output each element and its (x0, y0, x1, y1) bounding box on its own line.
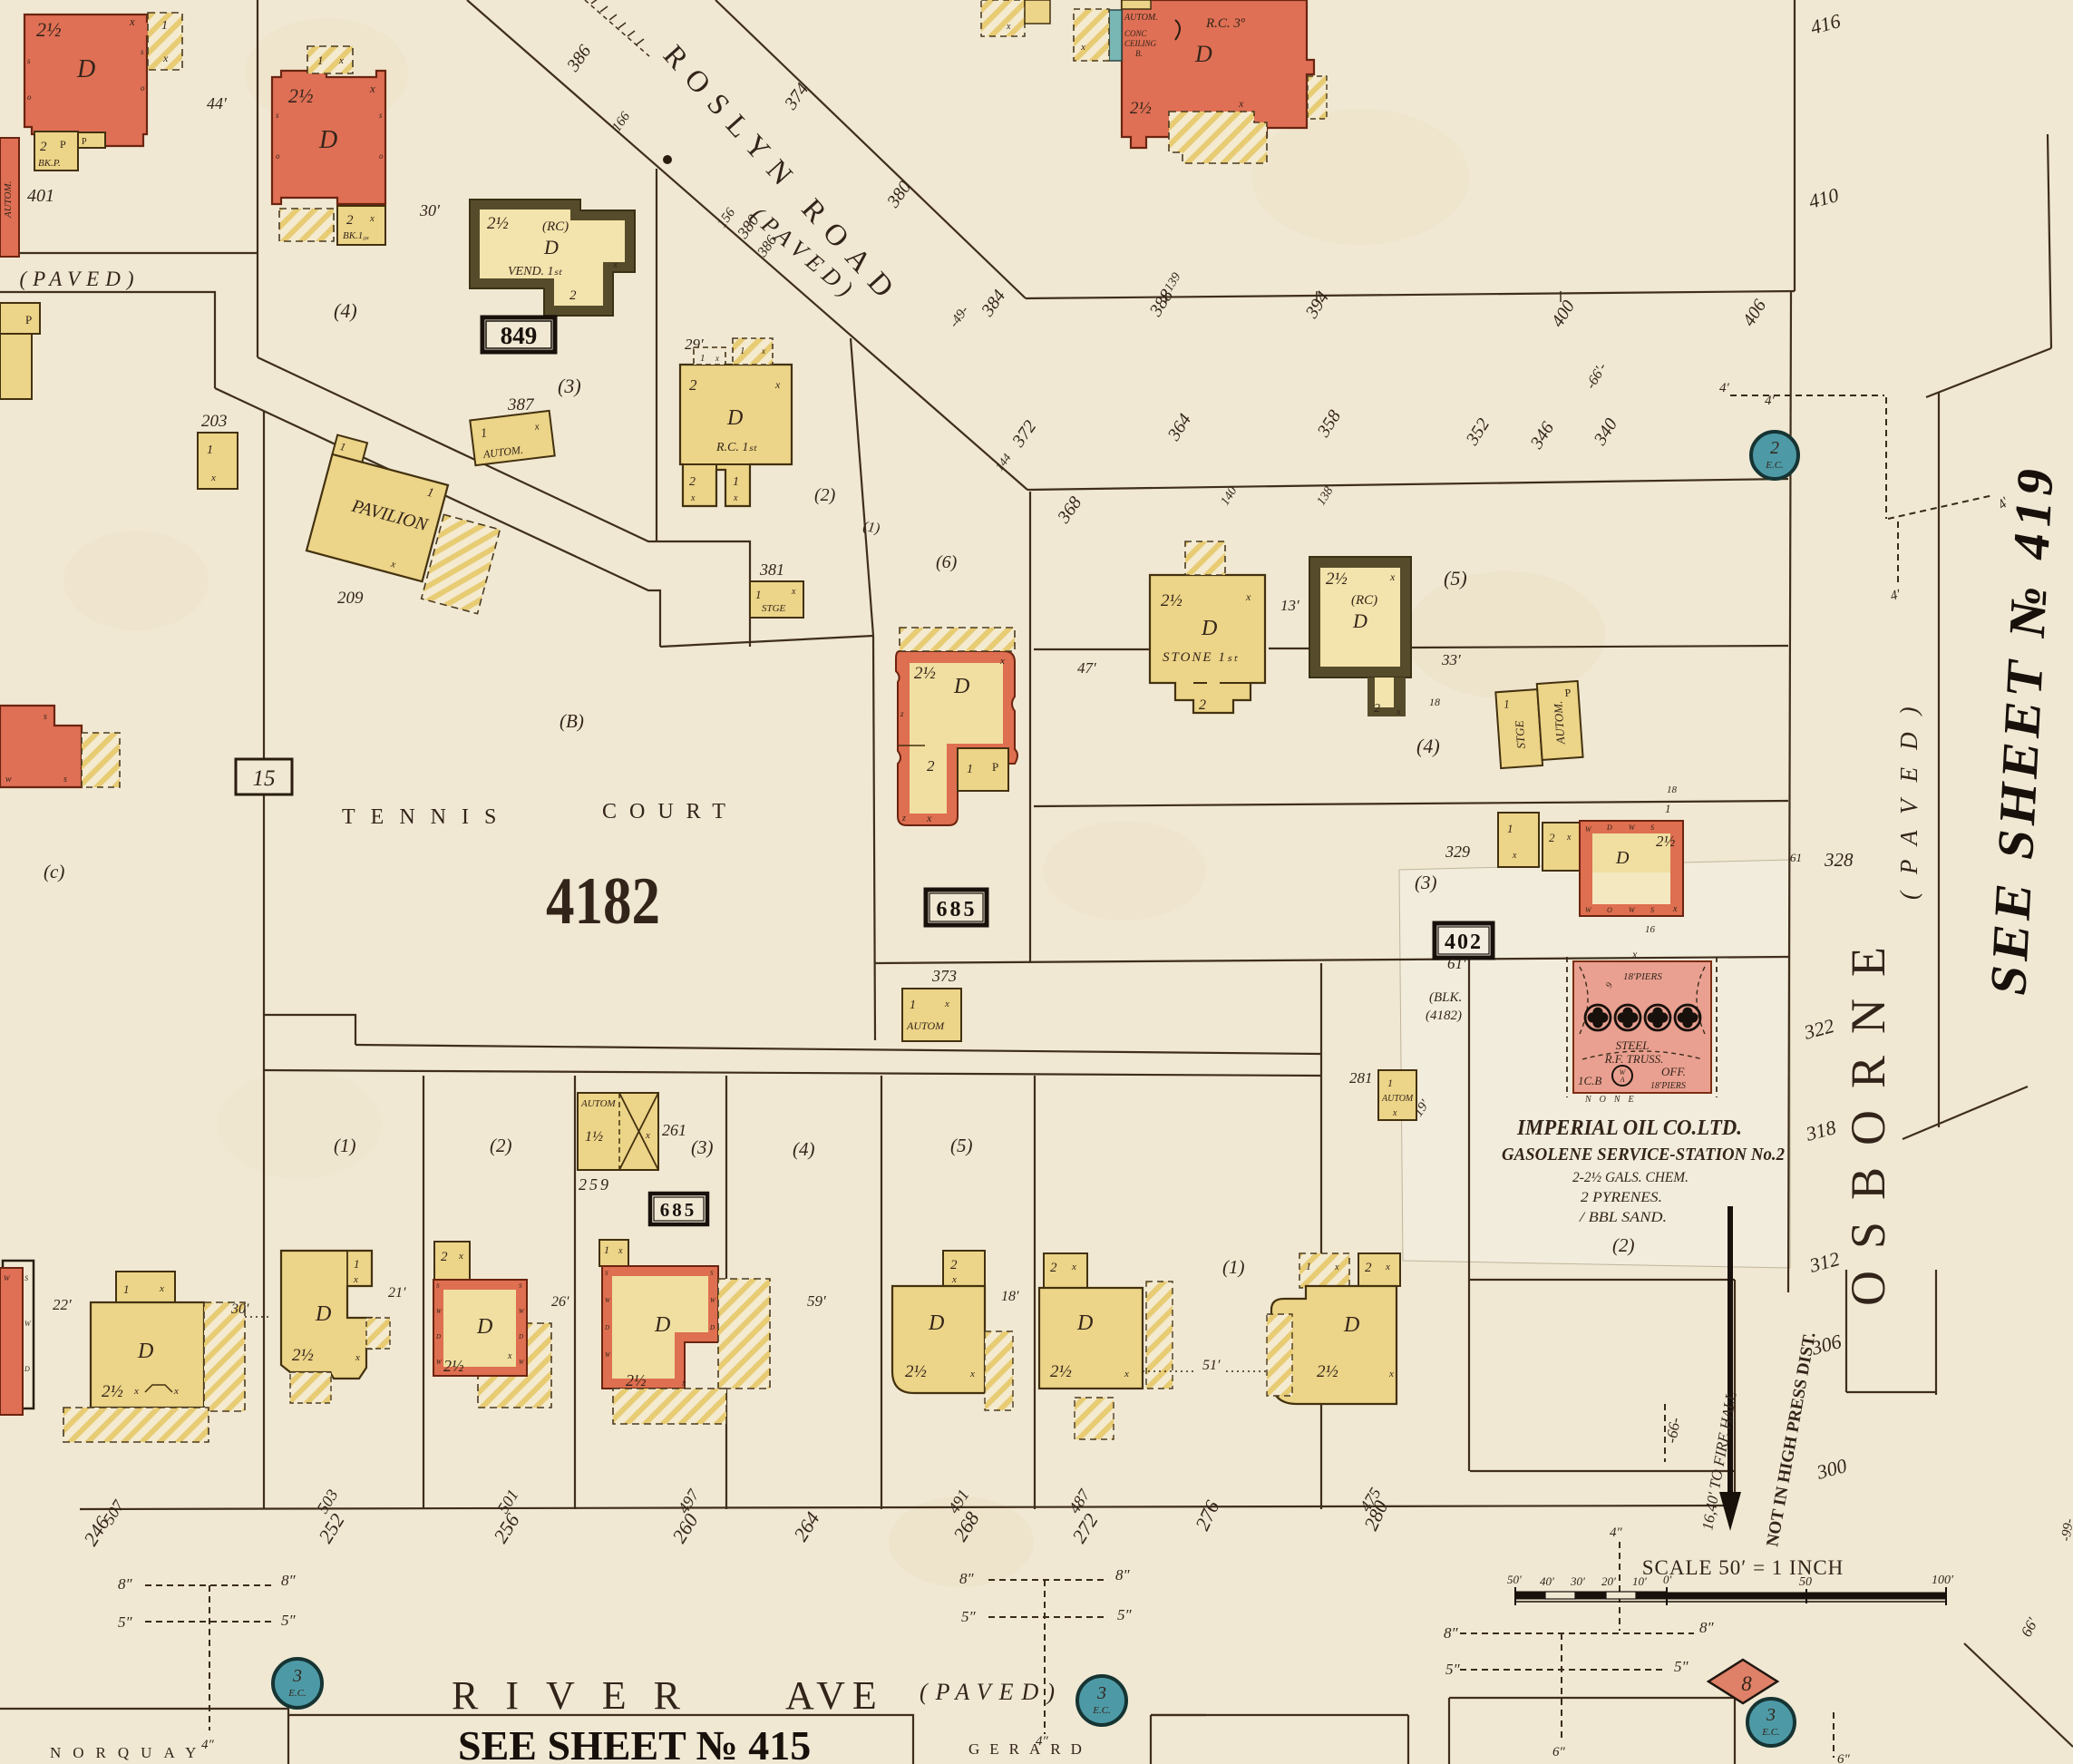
svg-text:s: s (44, 712, 47, 722)
svg-text:2: 2 (346, 213, 354, 228)
svg-text:1: 1 (910, 999, 916, 1012)
svg-text:2½: 2½ (36, 18, 62, 41)
svg-text:329: 329 (1445, 843, 1470, 861)
svg-text:18: 18 (1429, 696, 1440, 708)
svg-text:328: 328 (1824, 849, 1854, 871)
svg-text:(PAVED): (PAVED) (1895, 689, 1922, 900)
svg-text:AUTOM.: AUTOM. (1124, 13, 1158, 23)
svg-text:5″: 5″ (961, 1608, 977, 1625)
svg-text:x: x (1566, 833, 1572, 843)
svg-text:1: 1 (733, 475, 739, 489)
svg-text:30′: 30′ (1570, 1574, 1585, 1588)
svg-text:D: D (1606, 824, 1612, 832)
svg-text:259: 259 (579, 1175, 611, 1194)
svg-text:100′: 100′ (1932, 1574, 1954, 1587)
svg-text:26′: 26′ (551, 1294, 569, 1310)
svg-text:D: D (1615, 848, 1630, 868)
svg-text:2½: 2½ (102, 1382, 123, 1401)
svg-text:1: 1 (740, 346, 745, 356)
svg-text:D: D (1076, 1311, 1093, 1335)
svg-text:2½: 2½ (292, 1346, 314, 1365)
svg-text:(1): (1) (1222, 1256, 1245, 1278)
svg-text:2: 2 (689, 475, 696, 489)
svg-text:1: 1 (123, 1282, 130, 1296)
svg-text:0′: 0′ (1663, 1573, 1672, 1586)
svg-text:x: x (162, 52, 169, 64)
svg-text:x: x (944, 999, 949, 1009)
svg-text:S: S (1650, 824, 1654, 832)
svg-text:x: x (173, 1386, 179, 1397)
svg-text:S: S (436, 1282, 440, 1290)
svg-text:S: S (519, 1282, 522, 1290)
svg-text:S: S (710, 1270, 714, 1277)
svg-text:x: x (761, 346, 765, 356)
svg-text:P: P (1564, 687, 1572, 699)
svg-text:x: x (1512, 851, 1517, 861)
svg-text:STGE: STGE (762, 603, 786, 614)
svg-text:/ BBL SAND.: / BBL SAND. (1579, 1210, 1667, 1225)
svg-text:(1): (1) (861, 519, 881, 536)
svg-text:2½: 2½ (1317, 1362, 1338, 1381)
svg-text:D: D (318, 126, 337, 154)
svg-text:x: x (791, 587, 796, 597)
svg-text:2: 2 (689, 376, 697, 394)
svg-text:STGE: STGE (1513, 720, 1528, 749)
svg-text:x: x (1388, 1369, 1394, 1379)
svg-text:1: 1 (1504, 697, 1511, 710)
svg-text:(B): (B) (560, 710, 584, 732)
svg-text:s: s (63, 775, 67, 785)
svg-text:x: x (129, 15, 135, 28)
svg-text:2: 2 (1374, 702, 1380, 716)
svg-text:4′: 4′ (1765, 394, 1776, 408)
svg-text:D: D (315, 1302, 331, 1326)
svg-text:OFF.: OFF. (1661, 1065, 1686, 1078)
svg-text:2½: 2½ (1161, 591, 1182, 610)
svg-text:(5): (5) (1444, 567, 1467, 590)
svg-text:2½: 2½ (1130, 99, 1152, 118)
svg-text:D: D (24, 1365, 30, 1373)
svg-text:50′: 50′ (1507, 1573, 1522, 1586)
svg-text:x: x (774, 378, 781, 391)
svg-text:2½: 2½ (288, 84, 314, 107)
svg-text:8″: 8″ (1699, 1619, 1715, 1636)
svg-text:D: D (604, 1324, 609, 1331)
svg-text:2: 2 (40, 140, 47, 154)
svg-text:VEND. 1ₛₜ: VEND. 1ₛₜ (508, 265, 563, 278)
svg-text:x: x (369, 82, 375, 95)
svg-text:AVE: AVE (785, 1673, 884, 1718)
svg-text:22′: 22′ (53, 1296, 72, 1313)
svg-text:RIVER: RIVER (452, 1673, 707, 1718)
svg-text:o: o (379, 151, 384, 161)
svg-text:1: 1 (1665, 802, 1671, 815)
svg-text:R.F. TRUSS.: R.F. TRUSS. (1604, 1052, 1664, 1066)
svg-text:2½: 2½ (626, 1371, 647, 1389)
svg-text:5″: 5″ (1674, 1658, 1689, 1675)
svg-text:x: x (1392, 1108, 1397, 1118)
svg-text:x: x (715, 354, 719, 363)
svg-text:4182: 4182 (546, 864, 660, 939)
svg-text:849: 849 (501, 322, 538, 349)
svg-text:4″: 4″ (1610, 1525, 1623, 1540)
svg-text:D: D (726, 406, 743, 430)
svg-text:O: O (1607, 906, 1612, 914)
svg-text:A: A (1620, 1076, 1625, 1084)
svg-text:CEILING: CEILING (1124, 39, 1157, 48)
svg-text:x: x (210, 473, 216, 483)
svg-text:1: 1 (354, 1257, 360, 1271)
svg-text:1: 1 (161, 19, 168, 33)
svg-text:NORQUAY: NORQUAY (50, 1744, 208, 1761)
svg-text:x: x (926, 812, 932, 824)
svg-text:E.C.: E.C. (287, 1688, 307, 1699)
svg-text:D: D (709, 1324, 715, 1331)
svg-text:1: 1 (967, 763, 973, 776)
svg-text:x: x (1631, 948, 1638, 960)
svg-text:30′: 30′ (230, 1301, 249, 1317)
svg-text:z: z (901, 814, 906, 824)
svg-text:D: D (654, 1313, 670, 1337)
svg-text:2½: 2½ (487, 214, 509, 233)
svg-text:5″: 5″ (1117, 1606, 1133, 1623)
svg-text:R.C. 1ₛₜ: R.C. 1ₛₜ (715, 441, 758, 454)
svg-text:AUTOM.: AUTOM. (3, 181, 14, 219)
svg-text:E.C.: E.C. (1765, 460, 1784, 471)
svg-text:BK.P.: BK.P. (38, 158, 61, 169)
svg-text:5″: 5″ (281, 1612, 297, 1629)
svg-text:GERARD: GERARD (968, 1740, 1092, 1758)
svg-text:18: 18 (1667, 785, 1678, 795)
svg-text:P: P (60, 138, 66, 151)
svg-text:5″: 5″ (1445, 1661, 1461, 1678)
svg-text:40′: 40′ (1540, 1574, 1554, 1588)
svg-text:2: 2 (1365, 1261, 1372, 1275)
svg-text:GASOLENE SERVICE-STATION No.2: GASOLENE SERVICE-STATION No.2 (1502, 1145, 1785, 1165)
svg-text:2 PYRENES.: 2 PYRENES. (1581, 1190, 1662, 1205)
svg-text:STONE 1ₛₜ: STONE 1ₛₜ (1163, 650, 1240, 665)
svg-text:203: 203 (201, 412, 228, 431)
svg-text:E.C.: E.C. (1092, 1705, 1111, 1716)
svg-text:OSBORNE: OSBORNE (1841, 925, 1895, 1306)
svg-text:x: x (969, 1369, 975, 1379)
svg-text:(3): (3) (558, 375, 581, 397)
svg-text:SEE SHEET № 415: SEE SHEET № 415 (458, 1722, 811, 1764)
svg-text:(4): (4) (793, 1138, 815, 1160)
svg-text:30′: 30′ (419, 201, 441, 219)
svg-text:x: x (1389, 570, 1396, 583)
svg-text:20′: 20′ (1601, 1574, 1616, 1588)
svg-text:685: 685 (660, 1199, 697, 1221)
svg-text:w: w (5, 775, 12, 785)
svg-text:x: x (353, 1274, 358, 1285)
svg-text:x: x (1245, 590, 1251, 603)
svg-text:x: x (458, 1251, 463, 1262)
svg-text:(3): (3) (691, 1136, 714, 1158)
svg-text:NONE: NONE (1584, 1095, 1642, 1105)
svg-text:6″: 6″ (1552, 1745, 1566, 1759)
svg-text:D: D (137, 1340, 153, 1363)
svg-text:1: 1 (1507, 822, 1513, 835)
svg-text:D: D (1352, 609, 1367, 632)
svg-text:2: 2 (1199, 697, 1206, 713)
svg-text:o: o (27, 93, 32, 102)
svg-text:x: x (159, 1283, 164, 1294)
svg-text:x: x (1080, 42, 1085, 53)
svg-text:1: 1 (207, 443, 213, 457)
svg-text:STEEL: STEEL (1616, 1038, 1650, 1052)
svg-text:1: 1 (604, 1243, 609, 1256)
svg-text:2½: 2½ (905, 1362, 927, 1381)
svg-text:1: 1 (1387, 1077, 1393, 1089)
svg-text:x: x (507, 1351, 512, 1361)
svg-text:2: 2 (1770, 438, 1779, 458)
svg-text:D: D (476, 1315, 492, 1339)
svg-text:50: 50 (1799, 1575, 1812, 1589)
svg-text:4″: 4″ (1036, 1734, 1049, 1749)
svg-text:x: x (369, 213, 375, 224)
svg-text:D: D (1343, 1313, 1359, 1337)
svg-text:BK.1₀ₓ: BK.1₀ₓ (343, 230, 369, 241)
svg-text:59′: 59′ (807, 1292, 826, 1310)
svg-text:10′: 10′ (1632, 1574, 1647, 1588)
svg-text:CONC: CONC (1124, 29, 1148, 38)
svg-text:IMPERIAL OIL CO.LTD.: IMPERIAL OIL CO.LTD. (1516, 1116, 1742, 1140)
svg-text:S: S (24, 1274, 28, 1282)
svg-text:(2): (2) (1612, 1234, 1635, 1256)
svg-text:209: 209 (337, 589, 364, 608)
svg-text:S: S (605, 1270, 608, 1277)
svg-text:S: S (1650, 906, 1654, 914)
svg-text:D: D (543, 236, 559, 258)
svg-text:8″: 8″ (118, 1575, 133, 1593)
svg-text:(6): (6) (936, 552, 958, 572)
svg-text:(RC): (RC) (542, 219, 569, 234)
svg-text:1: 1 (700, 353, 706, 364)
svg-text:(RC): (RC) (1351, 593, 1377, 608)
svg-text:D: D (928, 1311, 944, 1335)
svg-text:13′: 13′ (1280, 597, 1299, 614)
svg-text:61′: 61′ (1447, 955, 1466, 972)
svg-text:D: D (76, 55, 95, 83)
svg-text:15: 15 (253, 766, 276, 791)
svg-text:2½: 2½ (1326, 570, 1348, 589)
svg-text:s: s (27, 56, 31, 65)
svg-text:x: x (690, 493, 696, 503)
svg-text:(c): (c) (44, 861, 64, 882)
svg-text:SCALE 50′ = 1 INCH: SCALE 50′ = 1 INCH (1642, 1556, 1844, 1579)
svg-text:33′: 33′ (1441, 651, 1461, 668)
svg-text:261: 261 (662, 1121, 686, 1139)
svg-text:AUTOM: AUTOM (1381, 1094, 1414, 1104)
svg-text:3: 3 (1766, 1705, 1776, 1725)
svg-text:8: 8 (1741, 1672, 1752, 1695)
svg-text:8″: 8″ (959, 1570, 975, 1587)
svg-text:P: P (82, 137, 87, 147)
svg-text:(2): (2) (490, 1135, 512, 1156)
svg-text:401: 401 (27, 186, 54, 206)
svg-text:z: z (900, 709, 904, 718)
svg-text:1C.B: 1C.B (1578, 1074, 1601, 1087)
svg-text:TENNIS: TENNIS (342, 805, 511, 829)
svg-text:(2): (2) (814, 485, 836, 505)
svg-text:x: x (338, 55, 344, 66)
svg-text:x: x (951, 1274, 957, 1285)
svg-text:x: x (1385, 1262, 1390, 1272)
svg-text:x: x (1334, 1262, 1339, 1272)
svg-text:51′: 51′ (1202, 1358, 1221, 1373)
svg-text:373: 373 (931, 967, 957, 985)
svg-text:2½: 2½ (914, 664, 936, 683)
svg-text:x: x (1672, 904, 1678, 914)
svg-text:x: x (618, 1246, 623, 1256)
svg-text:D: D (953, 675, 969, 698)
svg-text:D: D (1201, 617, 1217, 640)
svg-text:1: 1 (755, 588, 762, 601)
svg-text:x: x (1071, 1262, 1076, 1272)
svg-text:402: 402 (1445, 931, 1483, 954)
svg-text:s: s (276, 111, 279, 120)
svg-text:2: 2 (1549, 831, 1555, 844)
svg-text:685: 685 (937, 898, 978, 921)
svg-text:16: 16 (1645, 924, 1656, 935)
svg-text:R.C. 3º: R.C. 3º (1205, 16, 1245, 31)
svg-text:3: 3 (1096, 1683, 1106, 1703)
svg-text:(5): (5) (950, 1135, 973, 1156)
svg-text:D: D (518, 1333, 523, 1340)
svg-text:18′PIERS: 18′PIERS (1650, 1081, 1686, 1091)
svg-text:(3): (3) (1415, 872, 1437, 893)
svg-text:o: o (276, 151, 280, 161)
svg-text:4′: 4′ (1719, 381, 1730, 395)
svg-text:2½: 2½ (1050, 1362, 1072, 1381)
svg-text:1: 1 (317, 54, 324, 67)
svg-text:281: 281 (1349, 1069, 1373, 1087)
svg-text:8″: 8″ (281, 1572, 297, 1589)
svg-text:2: 2 (441, 1250, 448, 1264)
svg-text:x: x (681, 1379, 686, 1389)
svg-text:E.C.: E.C. (1761, 1727, 1780, 1738)
svg-text:(4): (4) (334, 299, 357, 322)
svg-text:5″: 5″ (118, 1613, 133, 1631)
svg-text:AUTOM: AUTOM (906, 1019, 945, 1032)
svg-text:AUTOM: AUTOM (580, 1098, 617, 1109)
svg-text:x: x (645, 1130, 650, 1141)
svg-text:8″: 8″ (1115, 1566, 1131, 1584)
svg-text:(1): (1) (334, 1135, 356, 1156)
svg-text:x: x (1238, 97, 1244, 110)
svg-text:6″: 6″ (1837, 1752, 1851, 1764)
svg-text:x: x (1006, 22, 1011, 32)
svg-text:2: 2 (569, 288, 577, 303)
svg-text:21′: 21′ (388, 1285, 406, 1301)
svg-text:x: x (612, 259, 618, 270)
svg-text:61: 61 (1790, 851, 1802, 864)
svg-text:B.: B. (1135, 49, 1143, 58)
svg-text:x: x (1124, 1369, 1129, 1379)
svg-text:2½: 2½ (1656, 833, 1676, 850)
svg-text:44′: 44′ (207, 94, 228, 112)
svg-text:o: o (141, 83, 145, 93)
svg-text:D: D (1194, 41, 1212, 67)
svg-text:P: P (992, 760, 998, 774)
svg-text:x: x (733, 493, 738, 503)
svg-text:8″: 8″ (1444, 1624, 1459, 1642)
svg-text:2½: 2½ (443, 1357, 464, 1375)
svg-text:x: x (133, 1386, 139, 1397)
svg-text:(4182): (4182) (1426, 1009, 1462, 1023)
svg-text:2: 2 (950, 1258, 958, 1272)
svg-text:1: 1 (1306, 1260, 1311, 1272)
svg-text:(BLK.: (BLK. (1429, 990, 1462, 1005)
svg-text:2: 2 (1050, 1261, 1057, 1275)
svg-text:4″: 4″ (201, 1738, 215, 1752)
svg-text:COURT: COURT (602, 800, 738, 824)
svg-text:x: x (355, 1352, 360, 1363)
svg-text:s: s (379, 111, 383, 120)
svg-text:(PAVED): (PAVED) (19, 268, 140, 290)
svg-text:x: x (999, 656, 1005, 667)
svg-text:47′: 47′ (1077, 659, 1096, 677)
svg-text:3: 3 (292, 1666, 302, 1686)
svg-text:18′: 18′ (1001, 1289, 1019, 1304)
svg-text:2: 2 (927, 757, 935, 775)
svg-text:(PAVED): (PAVED) (920, 1679, 1063, 1705)
svg-text:D: D (435, 1333, 441, 1340)
svg-text:P: P (25, 313, 32, 326)
svg-text:387: 387 (507, 395, 535, 414)
svg-text:x: x (1396, 707, 1401, 717)
svg-text:381: 381 (759, 560, 784, 579)
svg-text:1½: 1½ (585, 1129, 603, 1145)
svg-text:s: s (141, 47, 144, 56)
svg-text:2-2½ GALS. CHEM.: 2-2½ GALS. CHEM. (1572, 1170, 1689, 1185)
svg-text:(4): (4) (1416, 735, 1440, 757)
svg-text:18′PIERS: 18′PIERS (1623, 971, 1662, 982)
